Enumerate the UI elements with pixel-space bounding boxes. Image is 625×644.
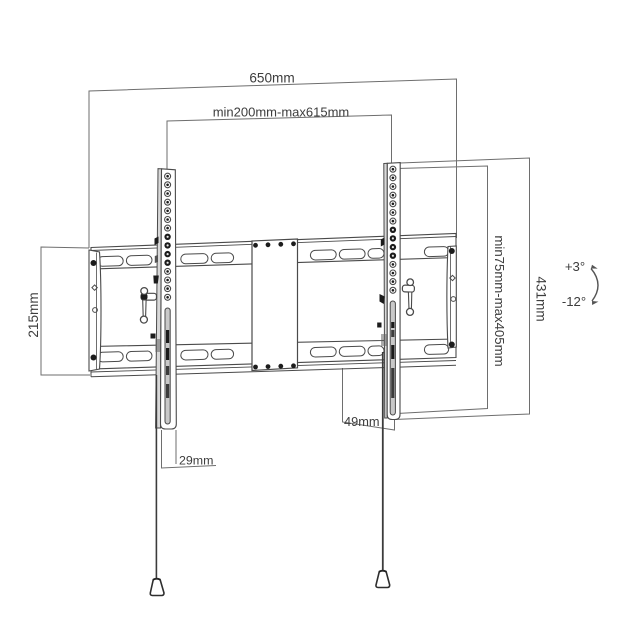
svg-text:49mm: 49mm [344, 414, 380, 429]
svg-text:29mm: 29mm [179, 454, 213, 468]
svg-text:-12°: -12° [562, 294, 586, 309]
svg-text:min75mm-max405mm: min75mm-max405mm [492, 235, 507, 366]
svg-text:650mm: 650mm [249, 71, 294, 86]
svg-text:min200mm-max615mm: min200mm-max615mm [213, 105, 350, 120]
svg-text:215mm: 215mm [26, 292, 41, 337]
svg-text:431mm: 431mm [534, 276, 549, 321]
svg-text:+3°: +3° [565, 259, 585, 274]
